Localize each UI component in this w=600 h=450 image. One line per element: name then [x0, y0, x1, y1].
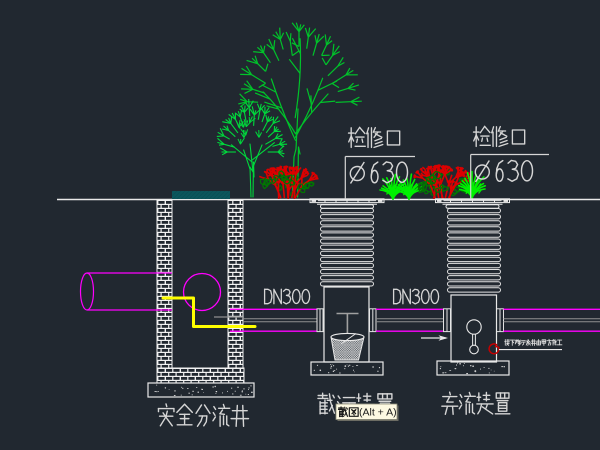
svg-text:(Alt + A): (Alt + A): [359, 407, 397, 419]
